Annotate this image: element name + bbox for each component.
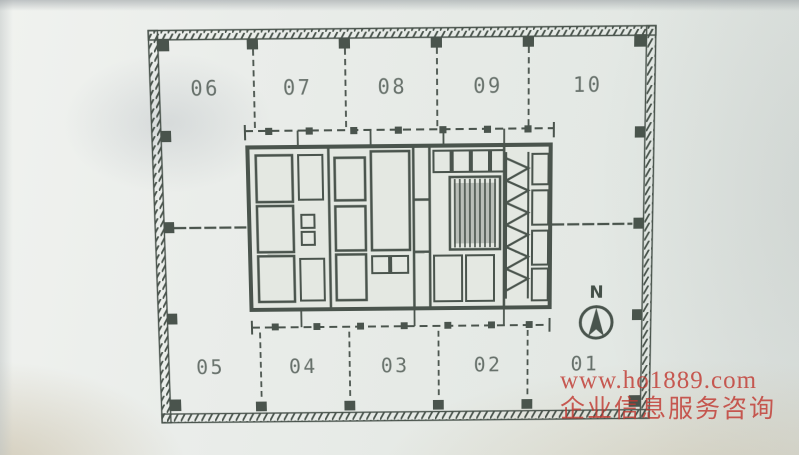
unit-label-06: 06 <box>190 76 220 101</box>
unit-label-10: 10 <box>573 72 603 97</box>
compass-n-label: N <box>589 283 603 303</box>
unit-label-02: 02 <box>474 353 503 376</box>
floorplan-plan-area: 06 07 08 09 10 05 04 03 02 01 N <box>0 0 799 454</box>
unit-label-08: 08 <box>377 74 407 99</box>
floorplan-photo: 06 07 08 09 10 05 04 03 02 01 N www.ho18… <box>0 0 799 455</box>
unit-label-09: 09 <box>473 73 503 98</box>
unit-label-04: 04 <box>289 355 318 378</box>
service-core <box>247 145 550 310</box>
unit-label-07: 07 <box>283 75 313 100</box>
unit-label-01: 01 <box>570 352 599 375</box>
unit-label-05: 05 <box>196 356 225 379</box>
unit-label-03: 03 <box>381 354 410 377</box>
north-arrow-icon: N <box>580 283 612 338</box>
floorplan-drawing: 06 07 08 09 10 05 04 03 02 01 N <box>0 0 799 454</box>
